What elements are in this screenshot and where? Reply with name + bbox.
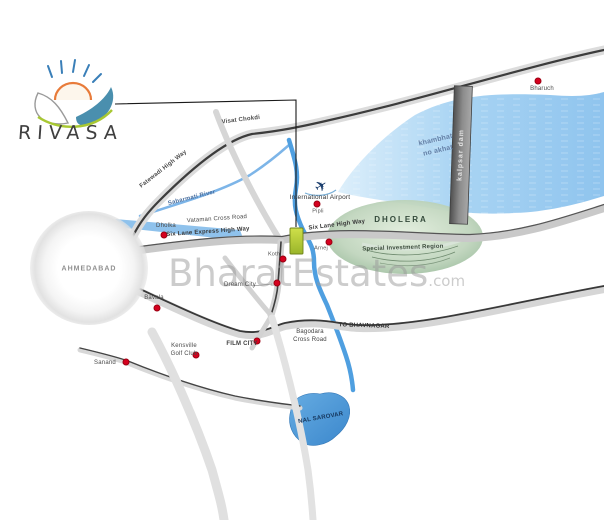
rivasa-logo-icon: [35, 60, 113, 127]
label-bavla: Bavala: [144, 295, 164, 303]
label-dholera: DHOLERA: [374, 215, 428, 225]
label-international-airport: International Airport: [290, 194, 351, 202]
label-bharuch: Bharuch: [530, 86, 554, 94]
dot-dream-city: [274, 280, 281, 287]
label-kalpsar-dam: kalpsar dam: [456, 129, 467, 181]
dot-koth: [280, 256, 287, 263]
rivasa-logo-text: RIVASA: [7, 122, 134, 144]
location-map: RIVASA BharatEstates.com ✈ AHMEDABAD Vis…: [0, 0, 604, 520]
label-bagodara-cross-road: Bagodara Cross Road: [293, 329, 327, 345]
label-arnej: Arnej: [314, 245, 328, 252]
label-kensville-golf-club: Kensville Golf Club: [171, 343, 198, 359]
label-sanand: Sanand: [94, 360, 116, 368]
label-dream-city: Dream City: [224, 282, 256, 290]
label-dholka: Dholka: [156, 223, 176, 231]
project-site-marker: [290, 228, 303, 254]
dot-sanand: [123, 359, 130, 366]
label-pipli: Pipli: [312, 208, 323, 215]
label-ahmedabad: AHMEDABAD: [62, 264, 117, 273]
dot-bavla: [154, 305, 161, 312]
label-koth: Koth: [268, 251, 280, 258]
dot-bharuch: [535, 78, 542, 85]
label-film-city: FILM CITY: [226, 341, 257, 349]
